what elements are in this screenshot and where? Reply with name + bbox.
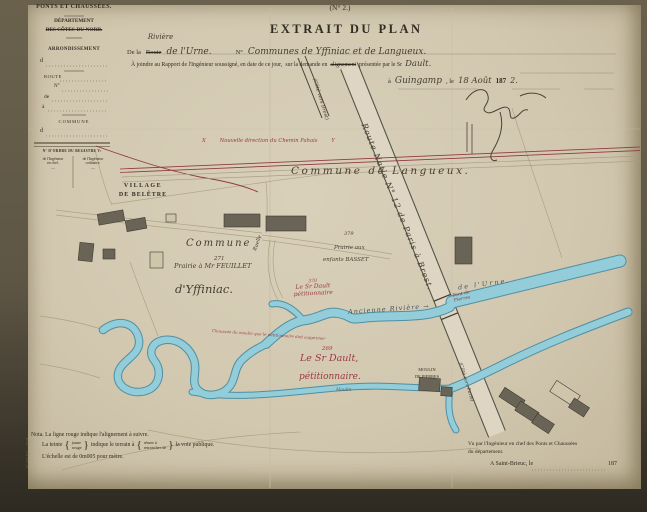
tint-mid: indique le terrain à (91, 442, 135, 449)
parcel-269: 269 (322, 346, 333, 352)
approval-place: A Saint-Brieuc, le (490, 461, 533, 468)
tint-actions: réunir à retrancher de (144, 441, 167, 451)
year-printed: 187 (496, 77, 507, 85)
approval-line1: Vu par l'Ingénieur en chef des Ponts et … (468, 441, 577, 447)
form-number: (N° 2.) (310, 4, 370, 13)
line1-prefix: De la (127, 49, 141, 56)
line1-overwrite: Rivière (148, 33, 173, 41)
petitioner-name: Dault. (405, 60, 431, 70)
arrondissement-prefix: d (40, 58, 43, 65)
line2-text-c: présentée par le Sr (359, 62, 402, 69)
route-a-label: à (42, 104, 44, 110)
line1-communes: Communes de Yffiniac et de Langueux. (248, 47, 426, 57)
prairie-basset-l2: enfants BASSET (323, 257, 369, 263)
commune-label: COMMUNE (36, 119, 112, 124)
parcel-379: 379 (344, 232, 354, 238)
red-alignment-label: X Nouvelle direction du Chemin Fahais Y (202, 139, 335, 145)
tint-pre: La teinte (42, 442, 62, 449)
departement-value: DES CÔTES-DU-NORD. (36, 28, 112, 34)
service-heading: PONTS ET CHAUSSÉES. (36, 4, 112, 11)
page-title: EXTRAIT DU PLAN (270, 22, 410, 36)
registre-col-chef-dash: — (34, 166, 72, 170)
yffiniac-label: d'Yffiniac. (175, 283, 233, 296)
village-beletre-l2: DE BELÊTRE (110, 192, 176, 199)
tint-options: jaune rouge (72, 441, 82, 451)
moulin-small-label: Moulin (336, 389, 351, 394)
year-hand: 2. (510, 76, 518, 85)
date-hand: 18 Août (458, 77, 492, 87)
registre-col-ordinaire: de l'Ingénieur ordinaire. — (74, 157, 112, 170)
departement-label: DÉPARTEMENT (36, 19, 112, 25)
moulin-pierres-l2: DE PIERRES (402, 375, 452, 380)
prairie-basset-l1: Prairie aux (334, 245, 365, 251)
tint-act-retrancher: retrancher de (144, 446, 167, 451)
alignment-point-y: Y (331, 139, 334, 145)
tint-opt-rouge: rouge (72, 446, 82, 451)
approval-line2: du département. (468, 449, 503, 455)
nota-line: Nota. La ligne rouge indique l'alignemen… (31, 432, 149, 439)
header-line3: à Guingamp , le 18 Août 187 2. (388, 76, 518, 87)
brace-close-2: } (168, 440, 173, 451)
tint-post: la voie publique. (176, 442, 215, 449)
line3-le: , le (446, 78, 454, 85)
prairie-feuillet-label: Prairie à Mr FEUILLET (174, 263, 251, 270)
commune-prefix: d (40, 128, 43, 135)
header-line2: À joindre au Rapport de l'Ingénieur sous… (131, 60, 431, 70)
printer-imprint: N° 131. Typ. — Paris. (25, 437, 29, 468)
line3-a: à (388, 78, 391, 85)
scanned-plan-photo: PONTS ET CHAUSSÉES. DÉPARTEMENT DES CÔTE… (0, 0, 647, 512)
moulin-pierres-l1: MOULIN (406, 368, 448, 373)
line1-river-name: de l'Urne. (166, 47, 211, 57)
dault-parcel-small: 370 Le Sr Dault pétitionnaire (282, 277, 345, 299)
form-rules (34, 16, 616, 470)
line1-struck-word: Route (146, 49, 162, 56)
registre-col-ordinaire-dash: — (74, 166, 112, 170)
place-name: Guingamp (395, 76, 442, 86)
brace-open-2: { (136, 440, 141, 451)
milestone-marks (467, 122, 472, 154)
arrondissement-label: ARRONDISSEMENT (36, 47, 112, 53)
route-number-label: N° (54, 84, 60, 90)
buildings (78, 210, 589, 434)
line2-text-b: sur la demande en (285, 62, 327, 69)
line1-no-label: N° (236, 49, 243, 56)
tint-legend-line: La teinte { jaune rouge } indique le ter… (42, 440, 214, 451)
brace-open-1: { (64, 440, 69, 451)
header-line1: De la Rivière Route de l'Urne. N° Commun… (127, 41, 426, 59)
registre-col-chef: de l'Ingénieur en chef. — (34, 157, 72, 170)
alignment-point-x: X (202, 139, 206, 145)
dault-big-l1: Le Sr Dault, (300, 354, 358, 365)
route-label: ROUTE (44, 74, 62, 79)
village-beletre-l1: VILLAGE (110, 183, 176, 190)
dault-big-l2: pétitionnaire. (299, 372, 361, 382)
commune-langueux-label: Commune de Langueux. (291, 165, 470, 177)
registre-heading: N° D'ORDRE DU REGISTRE V: (32, 149, 112, 153)
signature (466, 90, 546, 161)
line2-text-a: À joindre au Rapport de l'Ingénieur sous… (131, 62, 282, 69)
route-de-label: de (44, 94, 49, 100)
line2-struck-word: alignement (330, 62, 356, 69)
alignment-text: Nouvelle direction du Chemin Fahais (220, 139, 318, 145)
scale-note: L'échelle est de 0m005 pour mètre. (42, 454, 124, 461)
approval-year: 187 (608, 461, 617, 468)
brace-close-1: } (84, 440, 89, 451)
commune-yffiniac-label: Commune (186, 238, 251, 250)
